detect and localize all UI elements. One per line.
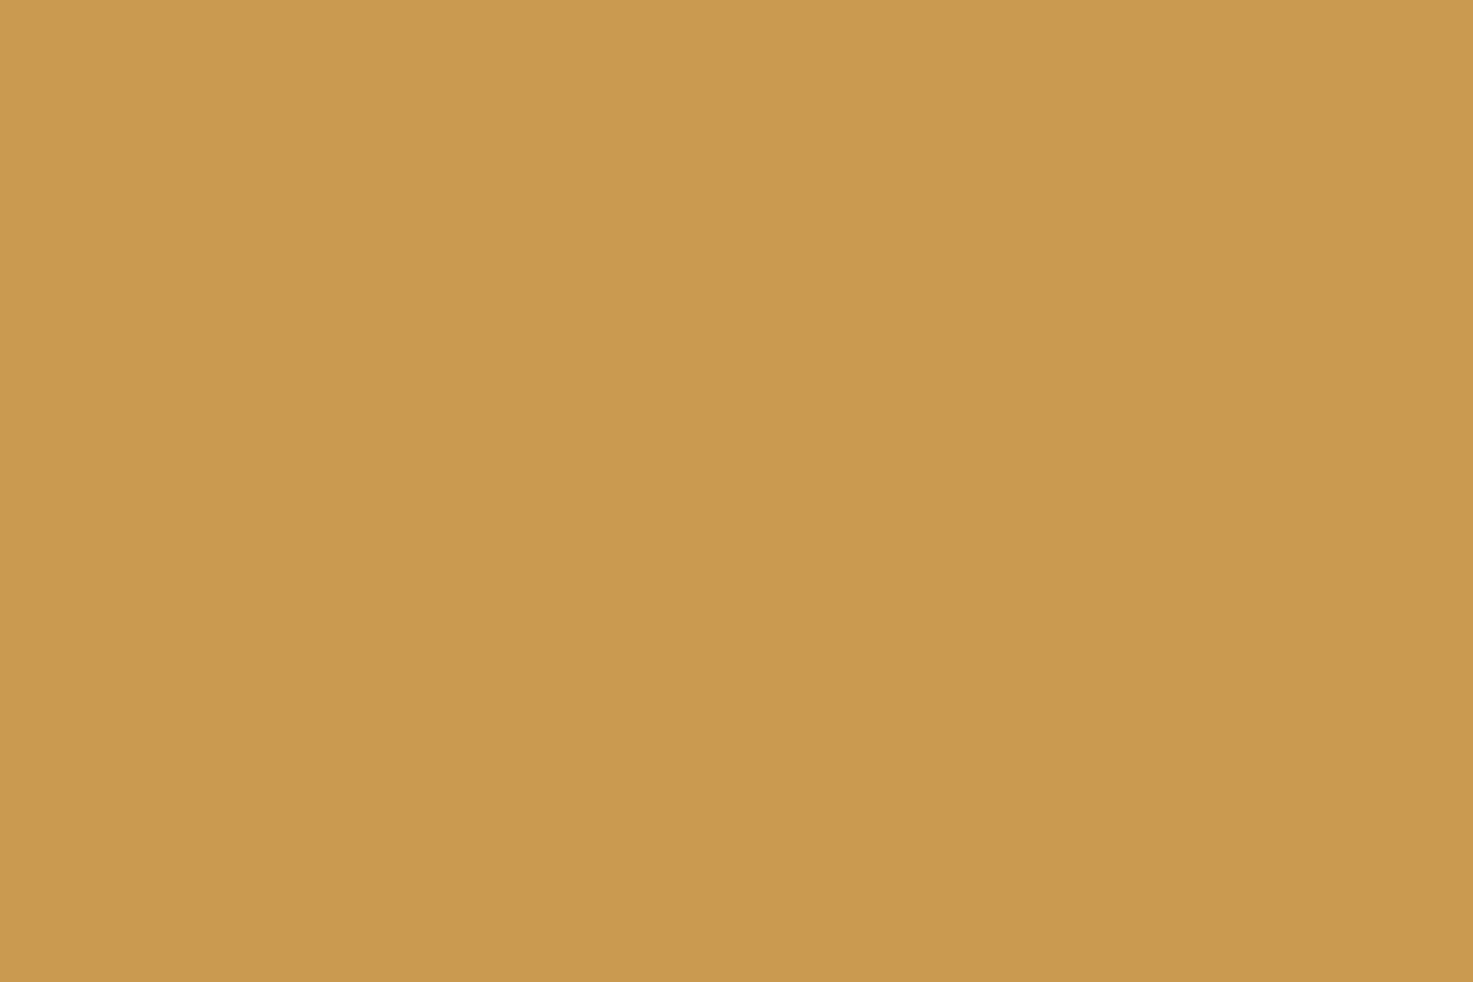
- satellite-image-viewport: [0, 0, 1473, 982]
- satellite-image: [0, 0, 1473, 982]
